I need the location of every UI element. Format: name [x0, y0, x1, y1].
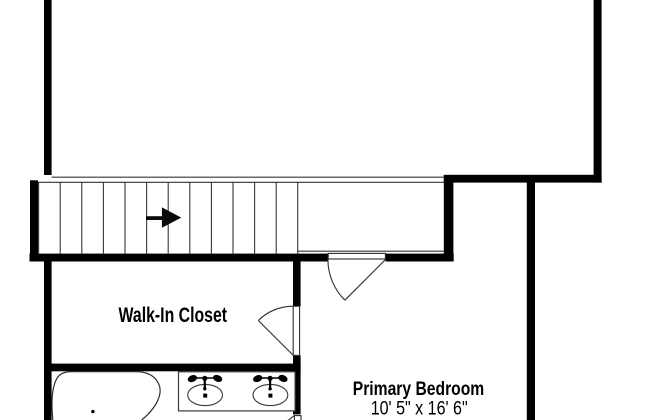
svg-text:Primary Bedroom: Primary Bedroom	[353, 379, 485, 400]
svg-text:10' 5" x 16' 6": 10' 5" x 16' 6"	[371, 399, 468, 420]
svg-text:Walk-In Closet: Walk-In Closet	[119, 304, 228, 327]
